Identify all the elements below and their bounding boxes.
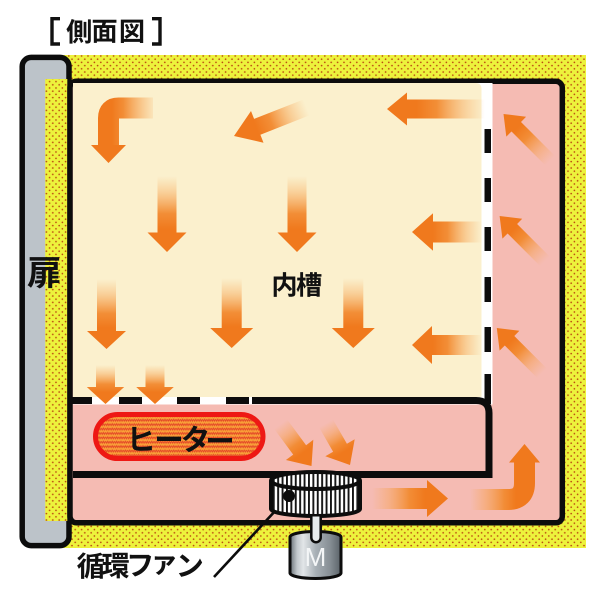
svg-text:M: M (305, 542, 327, 572)
